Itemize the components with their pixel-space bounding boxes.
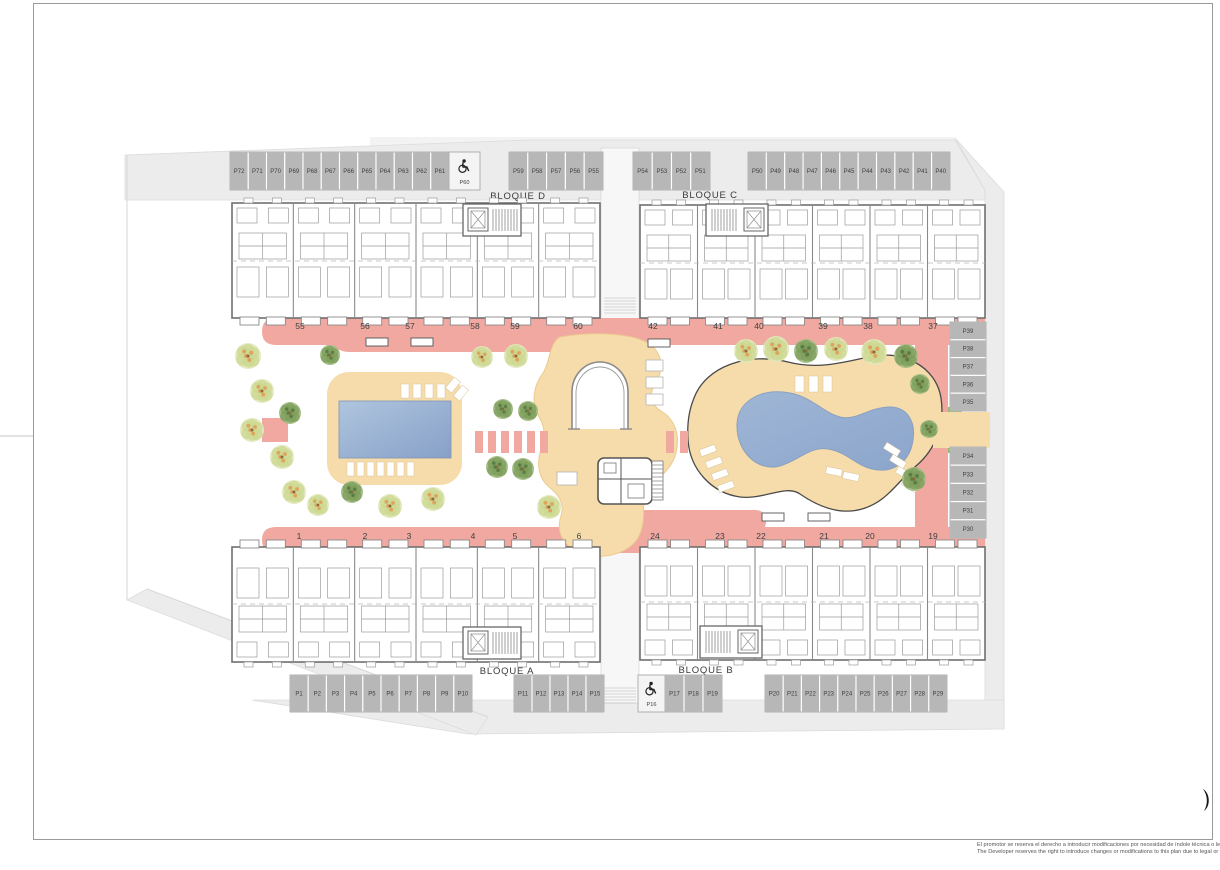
tree-speckle [347,486,351,490]
parking-stall-label: P39 [963,329,974,335]
balcony [648,540,667,548]
porch [518,662,527,667]
parking-stall-label: P37 [963,365,974,371]
balcony [328,540,347,548]
parking-stall-label: P23 [823,692,834,698]
unit-number: 5 [513,531,518,541]
tree-trunk [522,468,525,471]
tree-speckle [498,462,502,466]
bench [366,338,388,346]
parking-stall-label: P13 [554,692,565,698]
balcony [763,540,782,548]
porch [305,198,314,203]
balcony [573,540,592,548]
porch [767,660,776,665]
porch [367,662,376,667]
parking-stall-label: P65 [362,169,373,175]
unit-number: 24 [650,531,660,541]
balcony [266,317,285,325]
porch [579,662,588,667]
tree-speckle [543,501,547,505]
parking-stall-label: P66 [343,169,354,175]
tree-speckle [517,351,521,355]
tree-speckle [481,359,485,363]
balcony [450,317,469,325]
balcony [328,317,347,325]
disclaimer-en: The Developer reserves the right to intr… [977,849,1220,855]
porch [272,662,281,667]
porch [907,660,916,665]
parking-stall-label: P20 [769,692,780,698]
tree-trunk [527,410,529,412]
tree-speckle [800,345,804,349]
tree-speckle [915,379,918,382]
sun-lounger [809,376,818,392]
tree [320,345,340,365]
pool-house [598,458,663,504]
tree-trunk [928,428,930,430]
tree-speckle [389,508,393,512]
parking-stall-label: P44 [862,169,873,175]
sun-lounger [437,384,445,398]
tree-speckle [523,406,526,409]
balcony [958,540,977,548]
core-bloque-d [463,204,521,236]
unit-number: 2 [363,531,368,541]
porch [940,200,949,205]
tree-trunk [351,491,354,494]
bench [808,513,830,521]
tree-speckle [805,353,809,357]
disclaimer-es: El promotor se reserva el derecho a intr… [977,842,1220,848]
parking-stall-label: P14 [572,692,583,698]
balcony [728,540,747,548]
balcony [728,317,747,325]
tree-speckle [498,404,501,407]
tree [378,494,402,518]
wheelchair-icon [462,159,465,162]
tree [902,467,926,491]
balcony [424,540,443,548]
parking-stall-label: P11 [518,692,529,698]
tree [794,339,818,363]
tree [270,445,294,469]
sun-lounger [387,462,394,476]
building-bloque-b [640,540,985,665]
stepping-stone [680,431,688,453]
unit-number: 39 [818,321,828,331]
site-plan: BLOQUE D BLOQUE C BLOQUE A BLOQUE B El p… [0,0,1220,870]
tree-speckle [905,358,909,362]
parking-stall-label: P55 [588,169,599,175]
tree-trunk [389,505,392,508]
tree-speckle [276,451,280,455]
sun-lounger [407,462,414,476]
balcony [878,317,897,325]
parking-stall-label: P32 [963,491,974,497]
porch [792,660,801,665]
porch [940,660,949,665]
tree-speckle [285,407,289,411]
porch [428,662,437,667]
stepping-stone [488,431,496,453]
porch [334,198,343,203]
logo-crescent-icon [1203,789,1209,811]
sun-lounger [367,462,374,476]
parking-col-right-upper: P39P38P37P36P35 [950,322,986,411]
building-bloque-d [232,198,600,325]
porch [428,198,437,203]
tree-speckle [483,352,487,356]
tree-trunk [913,478,916,481]
parking-row-top-left: P72P71P70P69P68P67P66P65P64P63P62P61 [230,152,449,190]
tree-trunk [774,347,777,350]
tree [471,346,493,368]
porch [244,198,253,203]
unit-number: 3 [407,531,412,541]
parking-stall-label: P63 [398,169,409,175]
porch [964,660,973,665]
tree-speckle [515,358,519,362]
tree-speckle [317,507,321,511]
unit-number: 23 [715,531,725,541]
parking-stall-label: P34 [963,454,974,460]
tree [421,487,445,511]
unit-number: 60 [573,321,583,331]
parking-stall-label: P22 [805,692,816,698]
porch [882,660,891,665]
bench [648,339,670,347]
tree-trunk [496,466,499,469]
tree-speckle [263,386,267,390]
tree-speckle [510,350,514,354]
pool-house-stairs [652,461,663,500]
parking-stall-label: P70 [270,169,281,175]
parking-stall-label: P68 [307,169,318,175]
unit-number: 1 [297,531,302,541]
tree-speckle [913,481,917,485]
parking-stall-label: P64 [380,169,391,175]
unit-number: 41 [713,321,723,331]
tree-trunk [432,498,435,501]
balcony [424,317,443,325]
block-label-bloque-c: BLOQUE C [682,190,738,201]
tree-speckle [329,356,332,359]
tree-speckle [249,351,253,355]
parking-stall-label: P27 [896,692,907,698]
balcony [821,540,840,548]
tree-speckle [775,351,779,355]
tree-speckle [281,459,285,463]
porch [652,200,661,205]
parking-stall-label: P38 [963,347,974,353]
sun-lounger [397,462,404,476]
tree [920,420,938,438]
stepping-stone [475,431,483,453]
tree-speckle [391,501,395,505]
balcony [843,540,862,548]
sun-lounger [413,384,421,398]
porch [907,200,916,205]
parking-stall-label: P5 [368,692,376,698]
parking-stall-label: P45 [844,169,855,175]
sun-lounger [401,384,409,398]
tree-trunk [293,491,296,494]
tree-trunk [548,506,551,509]
tree-trunk [481,356,484,359]
unit-number: 6 [577,531,582,541]
tree-speckle [873,354,877,358]
tree-speckle [384,500,388,504]
parking-stall-label: P36 [963,382,974,388]
tree-speckle [915,474,919,478]
unit-number: 42 [648,321,658,331]
parking-col-right-lower: P34P33P32P31P30 [950,447,986,538]
parking-stall-label: P61 [435,169,446,175]
tree-speckle [283,452,287,456]
parking-stall-label: P3 [332,692,340,698]
tree-speckle [921,380,924,383]
sun-lounger [795,376,804,392]
porch [825,200,834,205]
entrance-path [933,412,990,448]
unit-number: 55 [295,321,305,331]
tree-speckle [295,487,299,491]
tree-speckle [288,486,292,490]
balcony [547,317,566,325]
porch [677,660,686,665]
parking-accessible-p60: P60 [449,152,480,190]
porch [272,198,281,203]
tree-speckle [770,342,774,346]
tree-speckle [527,412,530,415]
tree [235,343,261,369]
tree-speckle [256,385,260,389]
unit-number: 20 [865,531,875,541]
balcony [763,317,782,325]
tree-trunk [872,350,875,353]
tree-speckle [807,346,811,350]
parking-stall-label: P15 [590,692,601,698]
parking-stall-label: P72 [234,169,245,175]
parking-stall-label: P25 [860,692,871,698]
balcony [671,540,690,548]
block-label-bloque-b: BLOQUE B [679,665,734,676]
porch [792,200,801,205]
sun-lounger [823,376,832,392]
parking-stall-label: P40 [935,169,946,175]
tree-speckle [868,345,872,349]
tree [307,494,329,516]
parking-row-bottom-mid-1: P11P12P13P14P15 [514,675,604,712]
tree-speckle [925,424,928,427]
balcony [266,540,285,548]
wheelchair-icon [649,682,652,685]
tree-speckle [242,349,246,353]
balcony [843,317,862,325]
parking-stall-label: P51 [695,169,706,175]
porch [734,660,743,665]
core-bloque-a [463,627,521,659]
parking-stall-label: P54 [637,169,648,175]
parking-stall-label: P58 [532,169,543,175]
porch [367,198,376,203]
parking-stall-label: P52 [676,169,687,175]
parking-stall-label: P49 [770,169,781,175]
tree [486,456,508,478]
porch [677,200,686,205]
tree-speckle [319,500,323,504]
parking-stall-label: P42 [899,169,910,175]
porch [518,198,527,203]
porch [395,198,404,203]
parking-stall-label: P59 [513,169,524,175]
parking-row-top-mid-1: P59P58P57P56P55 [509,152,603,190]
porch [579,198,588,203]
parking-stall-label: P43 [880,169,891,175]
plan-sheet: BLOQUE D BLOQUE C BLOQUE A BLOQUE B El p… [0,0,1220,870]
tree-speckle [529,407,532,410]
unit-number: 40 [754,321,764,331]
parking-stall-label: P26 [878,692,889,698]
porch [551,662,560,667]
tree [734,339,758,363]
parking-row-top-right: P50P49P48P47P46P45P44P43P42P41P40 [748,152,950,190]
tree-trunk [261,390,264,393]
bench [762,513,784,521]
tree [894,344,918,368]
core-bloque-c [706,204,768,236]
balcony [240,317,259,325]
tree-speckle [930,425,933,428]
porch [334,662,343,667]
parking-stall-label: P50 [752,169,763,175]
porch [849,200,858,205]
parking-stall-label: P24 [842,692,853,698]
balcony [547,540,566,548]
parking-stall-label: P17 [669,692,680,698]
tree [763,336,789,362]
sun-lounger [425,384,433,398]
tree-speckle [251,432,255,436]
tree-speckle [331,351,334,354]
tree [910,374,930,394]
stepping-stone [514,431,522,453]
balcony [363,540,382,548]
tree-speckle [432,501,436,505]
balcony [901,540,920,548]
pool-left [339,401,451,458]
tree-speckle [777,344,781,348]
balcony [936,540,955,548]
stepping-stone [666,431,674,453]
balcony [901,317,920,325]
porch [305,662,314,667]
tree-trunk [251,429,254,432]
unit-number: 37 [928,321,938,331]
tree-speckle [247,358,251,362]
parking-stall-label: P31 [963,509,974,515]
tree-trunk [317,504,320,507]
porch [551,198,560,203]
tree-trunk [246,354,249,357]
tree-speckle [548,509,552,513]
porch [710,660,719,665]
core-bloque-b [700,626,762,658]
parking-stall-label: P46 [825,169,836,175]
tree-speckle [289,415,293,419]
tree-speckle [477,351,481,355]
parking-stall-label: P4 [350,692,358,698]
unit-number: 19 [928,531,938,541]
tree [504,344,528,368]
unit-number: 58 [470,321,480,331]
parking-stall-label: P41 [917,169,928,175]
unit-number: 38 [863,321,873,331]
balcony [512,540,531,548]
tree-trunk [745,350,748,353]
tree-speckle [427,493,431,497]
accessible-stall-label: P60 [460,180,470,186]
parking-stall-label: P9 [441,692,449,698]
tree-speckle [745,353,749,357]
tree-speckle [837,344,841,348]
tree [861,339,887,365]
parking-stall-label: P8 [423,692,431,698]
balcony [485,540,504,548]
parking-stall-label: P53 [657,169,668,175]
tree-speckle [928,430,931,433]
tree [250,379,274,403]
building-bloque-c [640,200,985,325]
sun-lounger [347,462,354,476]
balcony [450,540,469,548]
parking-stall-label: P30 [963,527,974,533]
tree-speckle [504,405,507,408]
tree-trunk [805,350,808,353]
tree-trunk [329,354,331,356]
tree-speckle [351,494,355,498]
parking-stall-label: P10 [458,692,469,698]
tree-speckle [293,494,297,498]
unit-number: 59 [510,321,520,331]
parking-stall-label: P69 [289,169,300,175]
tree-speckle [502,410,505,413]
tree-speckle [246,424,250,428]
parking-row-bottom-mid-2: P17P18P19 [665,675,722,712]
parking-row-bottom-left: P1P2P3P4P5P6P7P8P9P10 [290,675,472,712]
parking-accessible-p16: P16 [638,675,665,712]
tree-speckle [496,469,500,473]
tree-speckle [550,502,554,506]
porch [964,200,973,205]
tree-speckle [261,393,265,397]
parking-stall-label: P1 [295,692,303,698]
parking-stall-label: P67 [325,169,336,175]
porch [652,660,661,665]
unit-number: 21 [819,531,829,541]
unit-number: 57 [405,321,415,331]
unit-number: 4 [471,531,476,541]
porch [882,200,891,205]
tree-speckle [875,347,879,351]
parking-stall-label: P12 [536,692,547,698]
tree-speckle [907,351,911,355]
porch [849,660,858,665]
unit-number: 22 [756,531,766,541]
tree-trunk [289,412,292,415]
parking-stall-label: P28 [914,692,925,698]
